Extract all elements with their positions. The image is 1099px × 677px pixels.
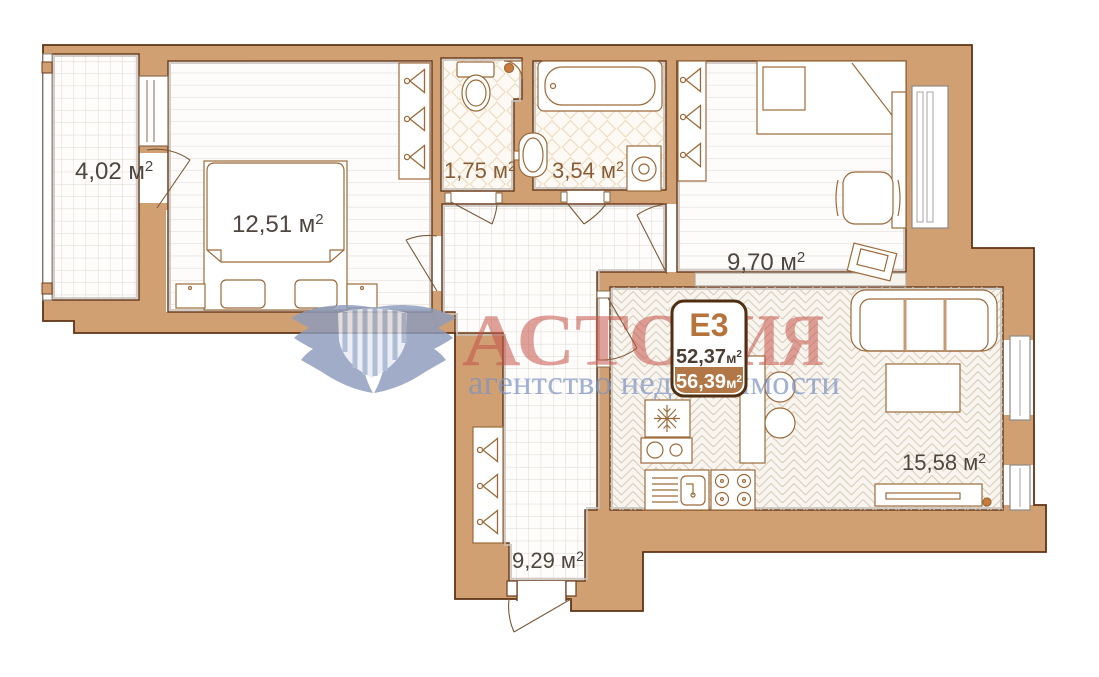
svg-text:12,51 м2: 12,51 м2	[232, 211, 324, 238]
svg-text:4,02 м2: 4,02 м2	[75, 158, 153, 185]
svg-text:15,58 м2: 15,58 м2	[902, 450, 986, 475]
svg-text:9,70 м2: 9,70 м2	[727, 249, 805, 276]
svg-text:агентство недвижимости: агентство недвижимости	[468, 365, 840, 402]
svg-text:9,29 м2: 9,29 м2	[512, 548, 584, 573]
svg-text:56,39м2: 56,39м2	[676, 371, 742, 393]
svg-text:Е3: Е3	[689, 307, 728, 343]
svg-text:1,75 м2: 1,75 м2	[444, 158, 516, 183]
svg-text:52,37м2: 52,37м2	[676, 346, 742, 368]
svg-text:3,54 м2: 3,54 м2	[552, 158, 624, 183]
